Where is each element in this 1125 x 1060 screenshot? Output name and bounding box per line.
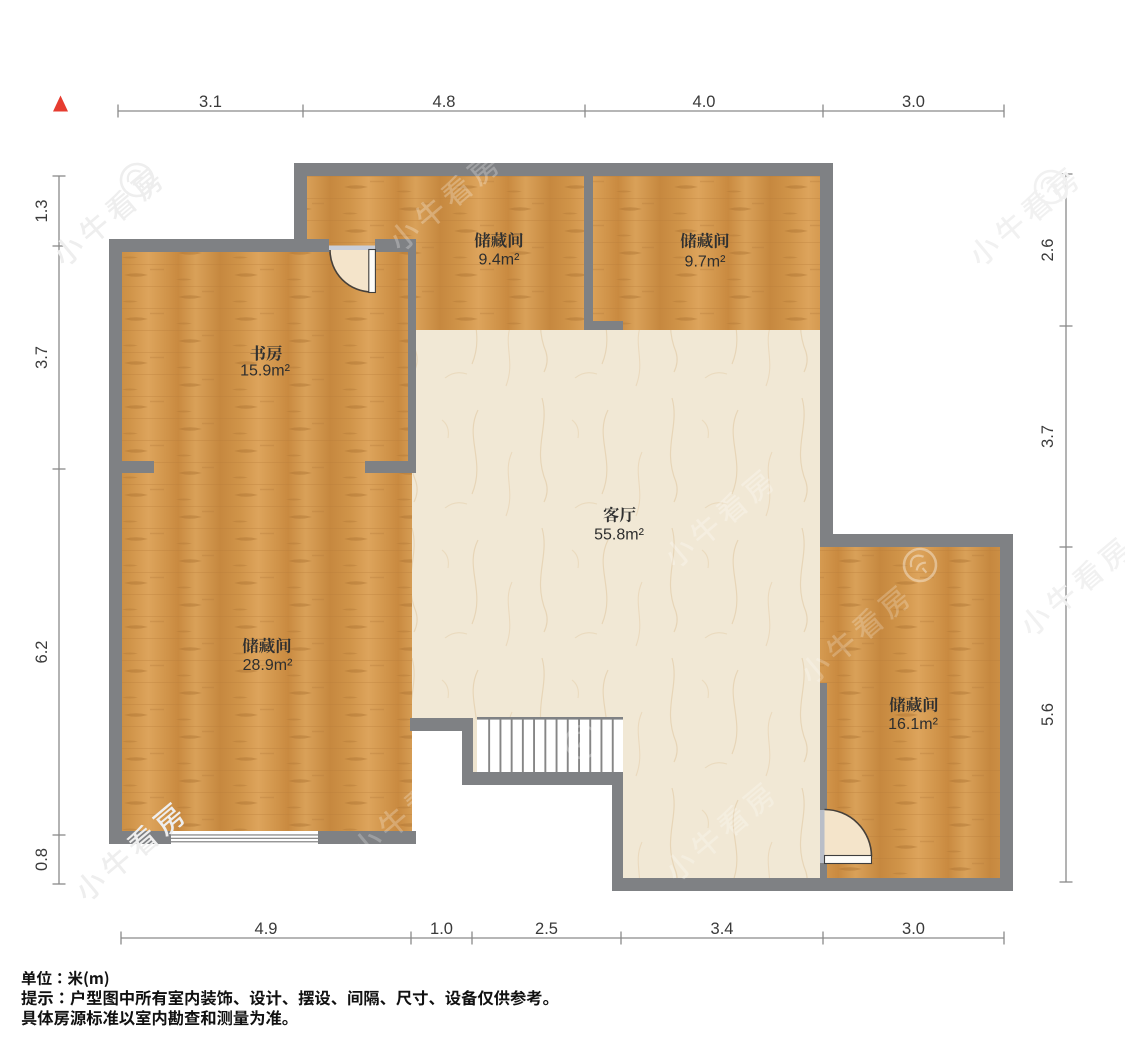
svg-text:9.7m²: 9.7m²: [685, 254, 727, 271]
svg-text:0.8: 0.8: [33, 848, 51, 871]
svg-text:3.4: 3.4: [711, 920, 734, 938]
svg-text:16.1m²: 16.1m²: [888, 716, 938, 733]
svg-text:6.2: 6.2: [33, 641, 51, 664]
svg-text:4.0: 4.0: [693, 93, 716, 111]
svg-text:3.7: 3.7: [33, 346, 51, 369]
svg-text:5.6: 5.6: [1039, 703, 1057, 726]
svg-text:3.1: 3.1: [199, 93, 222, 111]
svg-text:2.5: 2.5: [535, 920, 558, 938]
svg-text:15.9m²: 15.9m²: [240, 363, 290, 380]
svg-text:3.7: 3.7: [1039, 425, 1057, 448]
svg-text:3.0: 3.0: [902, 93, 925, 111]
svg-text:1.0: 1.0: [430, 920, 453, 938]
svg-text:1.3: 1.3: [33, 200, 51, 223]
svg-text:9.4m²: 9.4m²: [479, 252, 521, 269]
svg-text:3.0: 3.0: [902, 920, 925, 938]
svg-text:28.9m²: 28.9m²: [243, 657, 293, 674]
svg-text:4.9: 4.9: [255, 920, 278, 938]
svg-text:2.6: 2.6: [1039, 239, 1057, 262]
svg-text:4.8: 4.8: [433, 93, 456, 111]
svg-text:55.8m²: 55.8m²: [594, 527, 644, 544]
